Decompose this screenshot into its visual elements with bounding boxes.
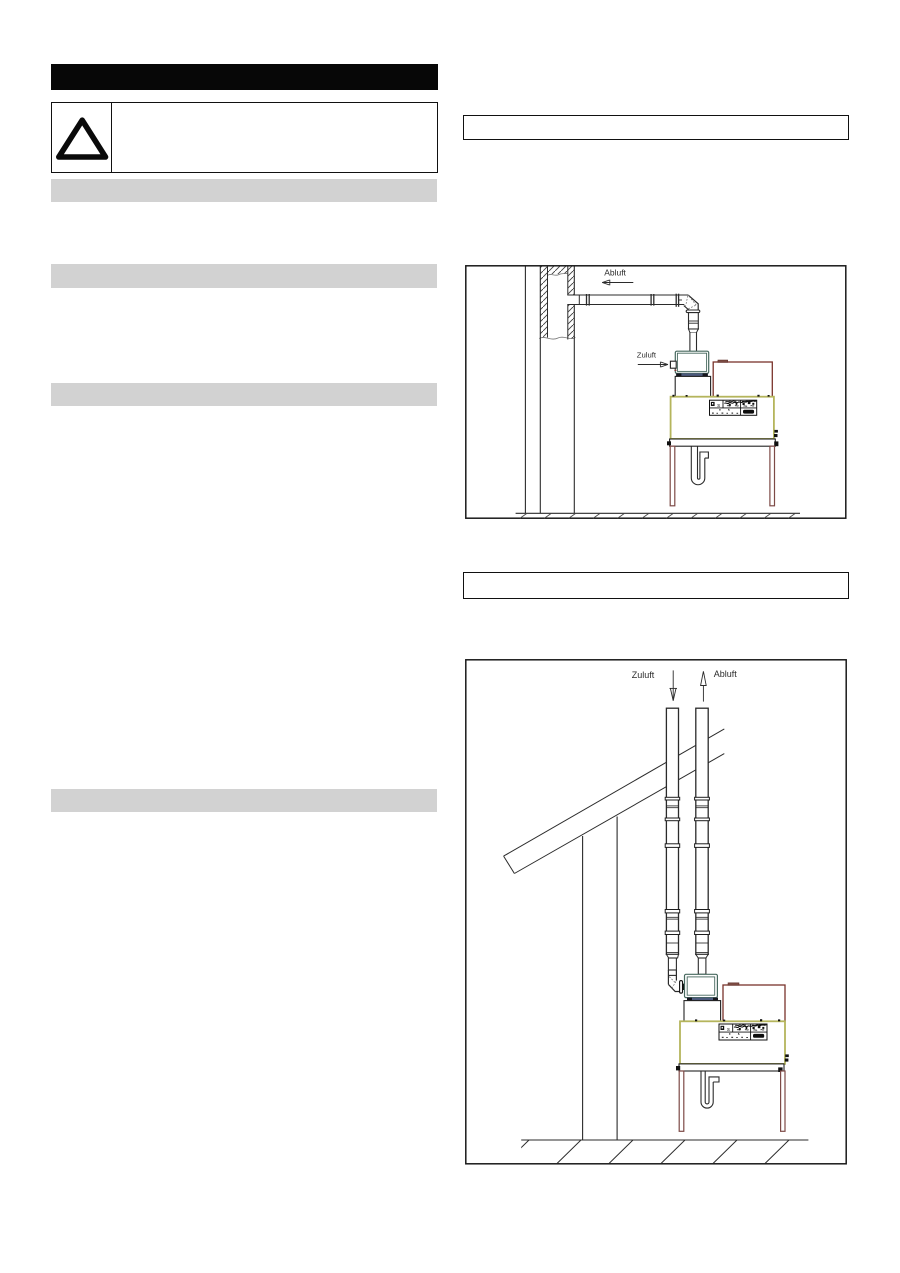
svg-text:s: s [717, 403, 720, 409]
svg-text:Abluft: Abluft [714, 669, 738, 679]
svg-text:Abluft: Abluft [604, 268, 626, 278]
svg-text:Zuluft: Zuluft [637, 351, 657, 360]
svg-text:s: s [727, 1027, 730, 1033]
svg-text:Zuluft: Zuluft [632, 670, 655, 680]
